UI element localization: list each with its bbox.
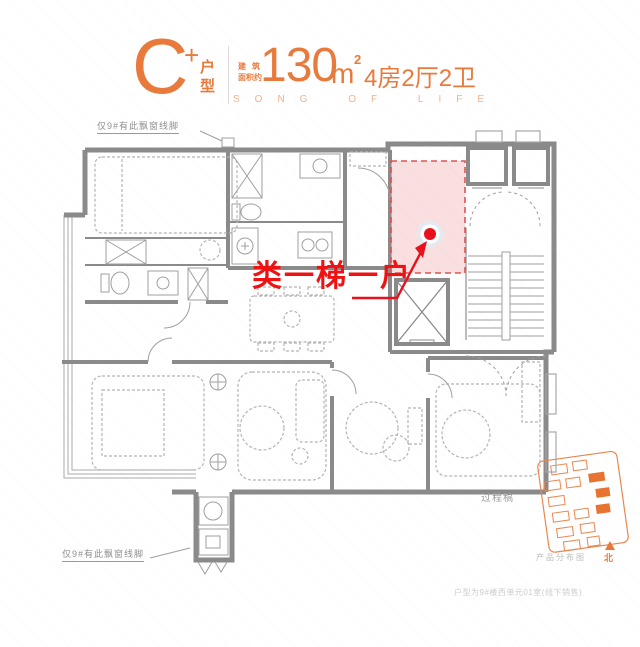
process-draft-watermark: 过程稿 <box>481 489 514 504</box>
site-map-caption: 产品分布图 <box>536 552 586 563</box>
north-label: 北 <box>604 551 613 564</box>
staircase <box>466 192 546 396</box>
site-map <box>537 451 629 553</box>
highlight-callout-label: 类一梯一户 <box>252 251 412 295</box>
interior-walls <box>62 150 546 492</box>
site-map-highlighted-buildings <box>588 471 613 514</box>
disclaimer-text: 户型为9#楼西单元01室(线下销售) <box>454 587 582 598</box>
floorplan-page: C + 户 型 建筑面积约 130 m 2 4房2厅2卫 SONG OF LIF… <box>0 0 640 647</box>
annotation-top-left: 仅9#有此飘窗线脚 <box>97 119 179 134</box>
annotation-bottom-left: 仅9#有此飘窗线脚 <box>62 547 144 562</box>
unit-marker-dot <box>417 221 443 247</box>
lift-lobby <box>468 148 548 188</box>
north-arrow-icon <box>605 541 615 550</box>
furniture <box>92 152 540 480</box>
